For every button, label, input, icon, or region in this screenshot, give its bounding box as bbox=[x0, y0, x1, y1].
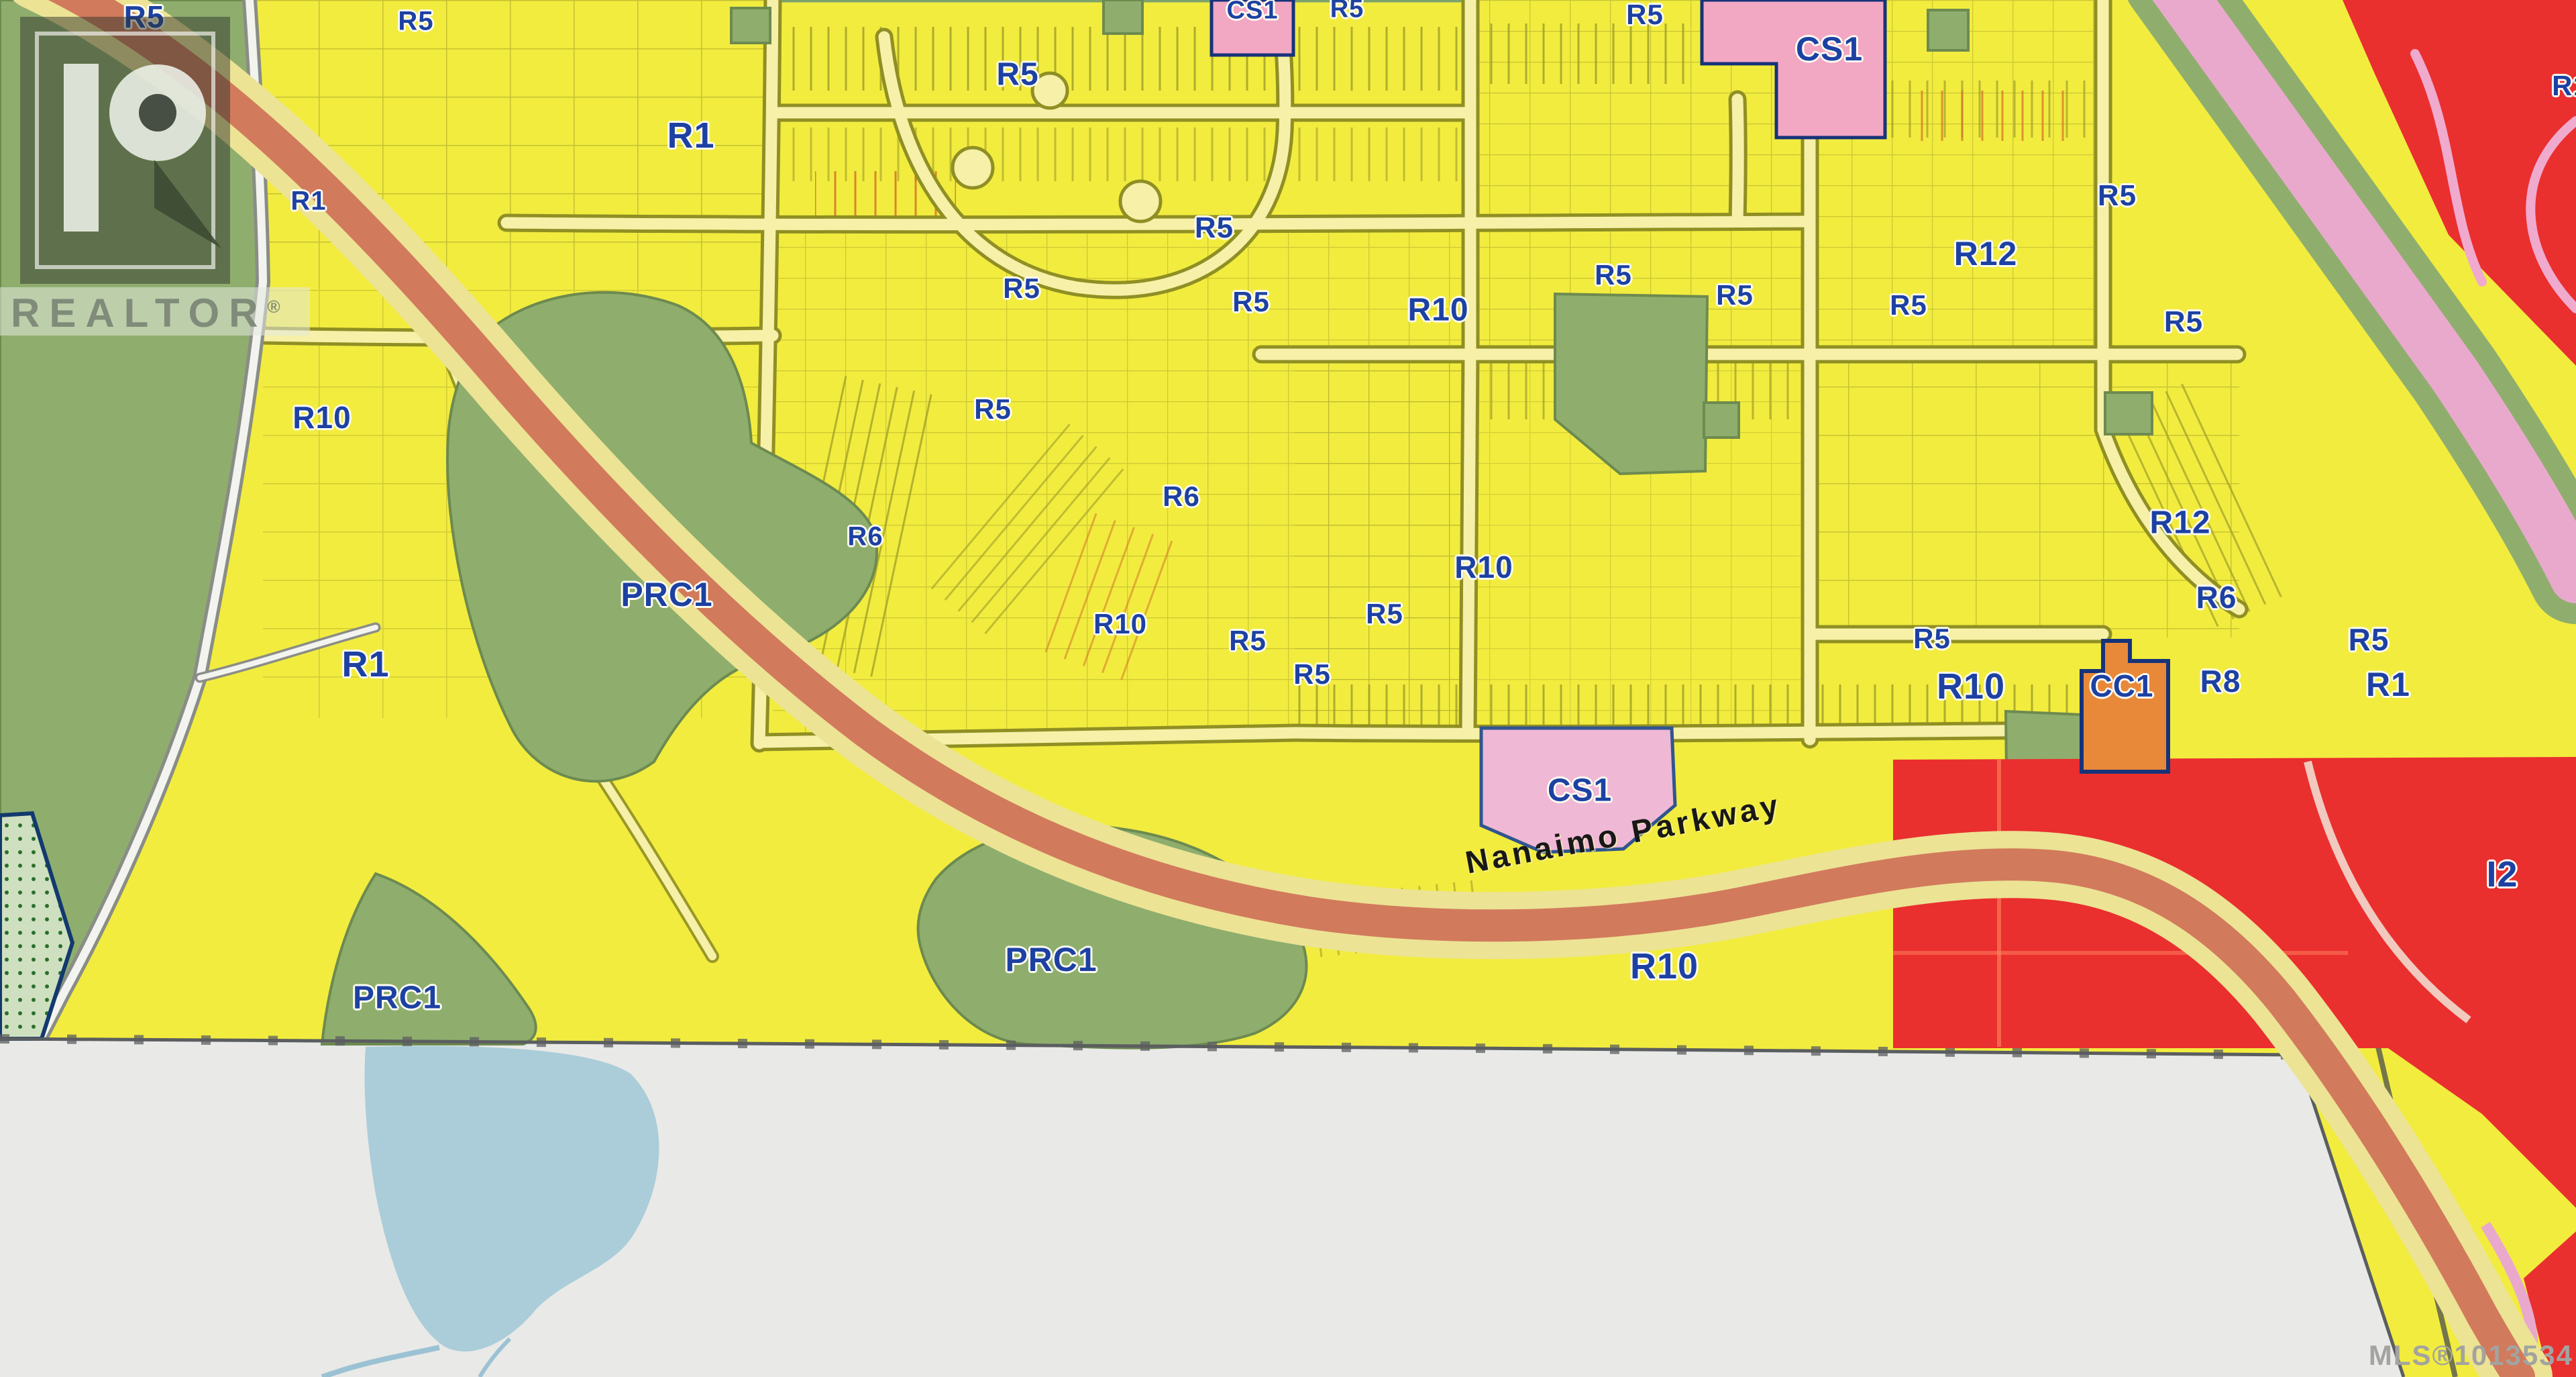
zone-label-r1: R1 bbox=[2552, 70, 2576, 102]
zone-label-r10: R10 bbox=[292, 399, 351, 436]
zone-label-r1: R1 bbox=[341, 644, 389, 685]
zone-label-prc1: PRC1 bbox=[1005, 940, 1097, 979]
zone-label-r6: R6 bbox=[1163, 480, 1200, 513]
zone-label-cs1: CS1 bbox=[1227, 0, 1279, 25]
zone-label-cs1: CS1 bbox=[1548, 772, 1612, 809]
zone-label-r5: R5 bbox=[1003, 272, 1040, 305]
zone-label-r1: R1 bbox=[667, 115, 714, 156]
zone-label-cs1: CS1 bbox=[1796, 30, 1863, 68]
zone-label-r5: R5 bbox=[1716, 279, 1754, 311]
zone-label-i2: I2 bbox=[2486, 854, 2518, 895]
zone-label-r10: R10 bbox=[1454, 549, 1513, 585]
zone-label-r12: R12 bbox=[1954, 234, 2018, 273]
realtor-logo bbox=[0, 0, 282, 302]
zone-label-r5: R5 bbox=[1890, 289, 1927, 321]
zone-label-r5: R5 bbox=[2164, 305, 2203, 339]
zone-label-r10: R10 bbox=[1937, 666, 2005, 707]
zone-label-r5: R5 bbox=[398, 7, 433, 37]
zone-label-r5: R5 bbox=[996, 56, 1038, 93]
zone-label-r8: R8 bbox=[2200, 663, 2241, 699]
zone-label-r5: R5 bbox=[1595, 259, 1632, 291]
zone-label-r1: R1 bbox=[2366, 665, 2410, 704]
zone-label-r5: R5 bbox=[1229, 625, 1267, 657]
zone-label-r12: R12 bbox=[2149, 505, 2210, 542]
zone-label-r5: R5 bbox=[1293, 658, 1331, 691]
zone-label-r6: R6 bbox=[2196, 579, 2237, 615]
zone-label-r10: R10 bbox=[1093, 608, 1147, 640]
map-graphics bbox=[0, 0, 2576, 1377]
zone-label-r5: R5 bbox=[1232, 286, 1270, 318]
mls-number: MLS®1013534 bbox=[2369, 1339, 2573, 1372]
zone-label-r5: R5 bbox=[1195, 211, 1234, 245]
zone-label-r1: R1 bbox=[290, 187, 326, 217]
zone-label-r10: R10 bbox=[1630, 946, 1699, 987]
watermark-text: REALTOR® bbox=[11, 290, 280, 336]
zone-label-r5: R5 bbox=[1366, 598, 1403, 630]
zone-label-cc1: CC1 bbox=[2090, 668, 2153, 704]
zoning-map-canvas: REALTOR® Nanaimo Parkway R5R5R1R1R10R1R5… bbox=[0, 0, 2576, 1377]
zone-label-r6: R6 bbox=[847, 522, 883, 552]
unzoned-gray-area bbox=[0, 1039, 2404, 1377]
zone-label-r5: R5 bbox=[974, 393, 1012, 425]
zone-label-r5: R5 bbox=[2098, 179, 2137, 213]
zone-label-r5: R5 bbox=[1330, 0, 1364, 24]
zone-label-r10: R10 bbox=[1407, 292, 1468, 329]
zone-label-r5: R5 bbox=[1913, 623, 1951, 655]
zone-label-r5: R5 bbox=[1626, 0, 1664, 31]
zone-label-prc1: PRC1 bbox=[353, 980, 441, 1017]
zone-label-r5: R5 bbox=[2349, 621, 2390, 658]
zone-label-prc1: PRC1 bbox=[621, 575, 712, 614]
